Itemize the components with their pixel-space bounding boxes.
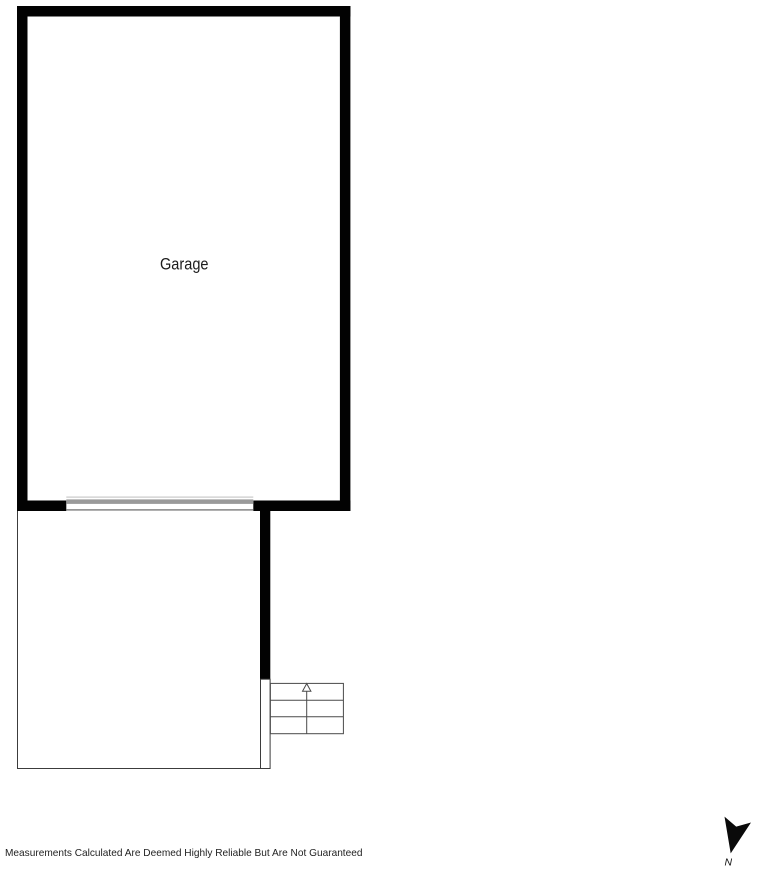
svg-text:Measurements Calculated Are De: Measurements Calculated Are Deemed Highl…: [5, 847, 363, 859]
svg-text:N: N: [725, 857, 733, 869]
svg-text:Garage: Garage: [160, 254, 209, 273]
